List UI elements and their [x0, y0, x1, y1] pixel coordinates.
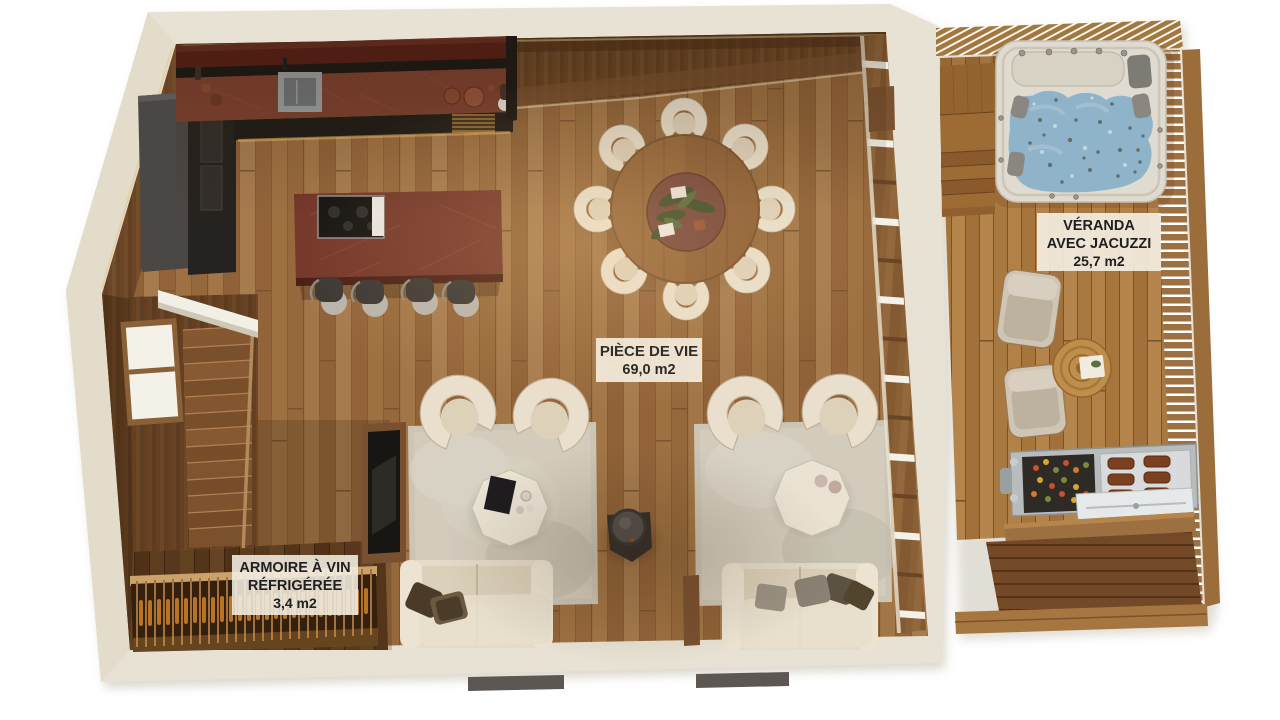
svg-text:25,7 m2: 25,7 m2 — [1073, 253, 1125, 269]
svg-text:ARMOIRE À VIN: ARMOIRE À VIN — [239, 559, 350, 576]
svg-text:3,4 m2: 3,4 m2 — [273, 595, 317, 611]
svg-text:AVEC JACUZZI: AVEC JACUZZI — [1047, 236, 1151, 252]
svg-text:VÉRANDA: VÉRANDA — [1063, 217, 1135, 234]
svg-text:RÉFRIGÉRÉE: RÉFRIGÉRÉE — [248, 577, 343, 594]
